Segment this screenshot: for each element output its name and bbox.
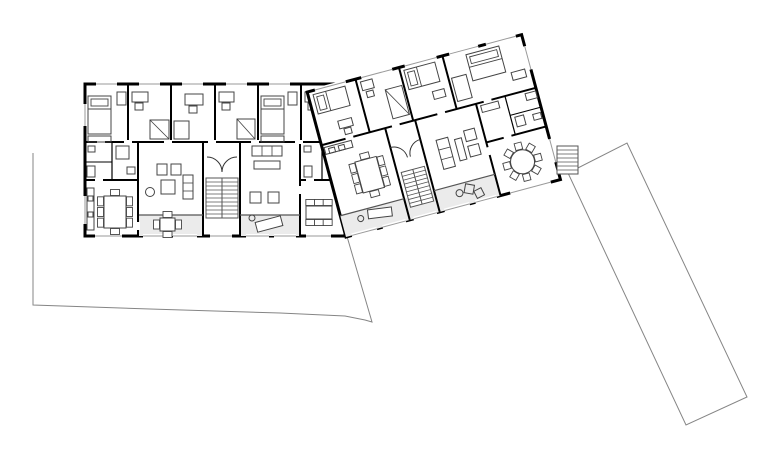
parcel-outline xyxy=(568,143,747,425)
chair xyxy=(98,208,104,217)
chair xyxy=(127,208,133,217)
chair xyxy=(503,162,512,171)
door-opening xyxy=(484,100,492,102)
chair xyxy=(323,220,332,226)
chair xyxy=(98,197,104,206)
chair xyxy=(111,229,120,235)
bed xyxy=(88,96,111,134)
chair xyxy=(315,200,324,206)
floor-plan-page xyxy=(0,0,780,459)
exterior-stairs xyxy=(557,146,578,174)
chair xyxy=(306,200,315,206)
site-front xyxy=(557,146,578,174)
chair xyxy=(176,220,182,229)
chair xyxy=(111,190,120,196)
door-opening xyxy=(504,136,512,138)
chair xyxy=(154,220,160,229)
door-opening xyxy=(488,147,490,155)
door-opening xyxy=(392,124,400,126)
chair xyxy=(127,218,133,227)
table-top xyxy=(306,206,332,219)
chair xyxy=(98,218,104,227)
dining-table xyxy=(306,200,332,226)
left-wing xyxy=(85,84,345,238)
door-opening xyxy=(437,112,445,114)
table-top xyxy=(104,196,126,228)
chair xyxy=(127,197,133,206)
chair xyxy=(306,220,315,226)
chair xyxy=(315,220,324,226)
door-opening xyxy=(346,137,354,139)
chair xyxy=(514,142,523,151)
chair xyxy=(522,173,531,182)
floor-plan-canvas xyxy=(0,0,780,459)
bed xyxy=(261,96,284,134)
table-top xyxy=(160,218,175,231)
bed-frame xyxy=(261,96,284,134)
chair xyxy=(163,212,172,218)
chair xyxy=(323,200,332,206)
chair xyxy=(163,232,172,238)
staircase xyxy=(206,178,238,218)
chair xyxy=(534,153,543,162)
right-wing xyxy=(307,35,560,237)
